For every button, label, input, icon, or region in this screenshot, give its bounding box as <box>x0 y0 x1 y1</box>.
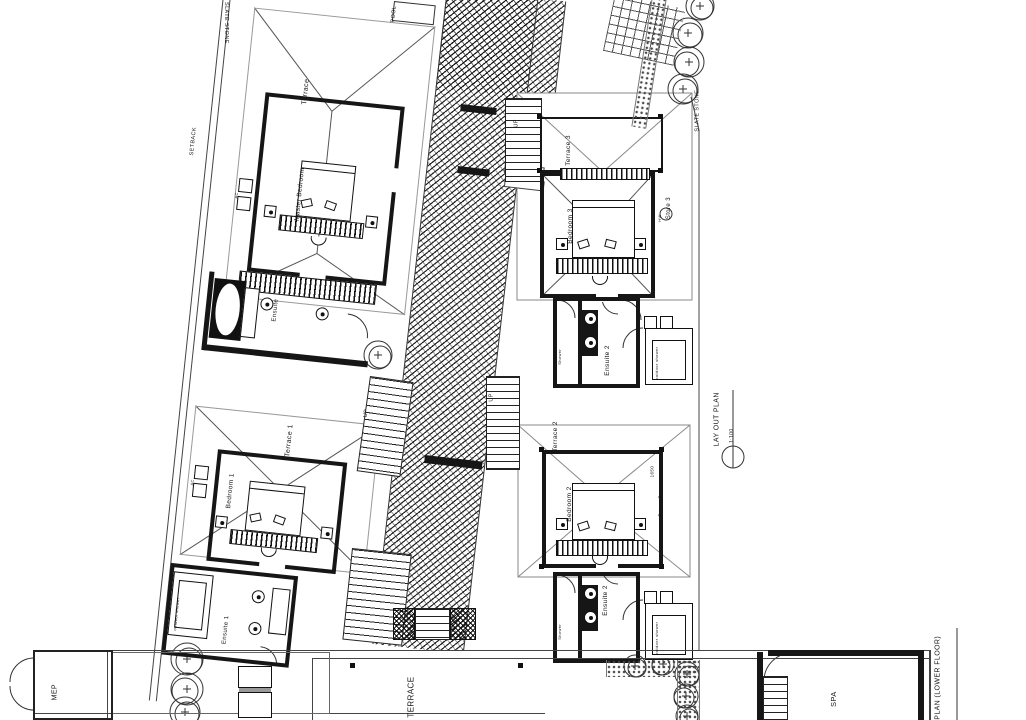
bedroom1-bed <box>245 481 306 537</box>
stair-pier <box>393 608 415 640</box>
mep-inner-wall <box>107 652 108 718</box>
stair-pier <box>450 608 476 640</box>
spa-top-wall <box>768 650 922 656</box>
bedroom3-nightstand <box>556 238 568 250</box>
terrace-column <box>518 663 523 668</box>
bedroom2-bed <box>572 483 635 540</box>
hw-label: HW <box>658 214 663 221</box>
bedroom2-nightstand <box>634 518 646 530</box>
bedroom3-bed <box>572 200 635 258</box>
ensuite2-lower-label: Ensuite 2 <box>602 585 610 616</box>
column-marker <box>659 447 664 452</box>
layout-plan-scale: 1:100 <box>729 428 735 443</box>
up-label: UP <box>488 393 495 401</box>
column-marker <box>539 564 544 569</box>
shower-upper-label: Shower <box>558 349 563 365</box>
ac-unit <box>194 465 209 480</box>
basin <box>584 336 597 349</box>
ac-label: AC <box>190 479 195 486</box>
master-nightstand <box>264 205 277 218</box>
pebble-strip <box>677 660 700 720</box>
terrace2-label: Terrace 2 <box>552 421 560 452</box>
basin <box>584 312 597 325</box>
outdoor-shower-upper-label: outdoor shower <box>655 347 660 380</box>
column-marker <box>658 114 663 119</box>
master-nightstand <box>365 215 378 228</box>
terrace-top-edge <box>312 658 930 659</box>
column-marker <box>537 114 542 119</box>
mep-walls <box>33 650 113 720</box>
terrace-column <box>350 663 355 668</box>
spa-label: SPA <box>829 691 838 707</box>
planter-shelf <box>239 688 271 692</box>
column-marker <box>659 564 664 569</box>
stairs-bottom-center <box>415 608 450 640</box>
bedroom2-bed-bench <box>556 540 648 556</box>
column-marker <box>539 447 544 452</box>
bedroom1-nightstand <box>320 526 333 539</box>
planter-box <box>238 692 272 718</box>
bedroom3-bed-bench <box>556 258 648 274</box>
bedroom3-nightstand <box>634 238 646 250</box>
layout-plan-title: LAY OUT PLAN <box>714 392 722 446</box>
ac-label: AC <box>234 192 239 199</box>
bedroom1-nightstand <box>215 515 228 528</box>
terrace-band-label: TERRACE <box>406 677 416 718</box>
up-label: UP <box>513 119 520 127</box>
bedroom2-label: Bedroom 2 <box>566 486 574 521</box>
basin <box>584 611 597 624</box>
spa-plan-title: SPA PLAN (LOWER FLOOR) <box>935 636 943 720</box>
store3-label: Store 3 <box>666 197 673 219</box>
lower-court <box>112 652 330 714</box>
slate-stone-right-label: SLATE STONE <box>694 90 701 132</box>
mep-label: MEP <box>52 684 60 700</box>
stairs-spa <box>763 676 788 720</box>
column-marker <box>658 168 663 173</box>
outdoor-shower-lower-label: outdoor shower <box>655 622 660 655</box>
bedroom2-door-gap <box>596 564 618 572</box>
spa-right-wall <box>918 650 924 720</box>
store2-label: Store 2 <box>659 495 666 517</box>
dim-1650-label: 1650 <box>650 466 655 478</box>
terrace3-label: Terrace 3 <box>565 135 573 166</box>
stairs-central: UP <box>486 376 520 470</box>
shower-lower-label: Shower <box>558 624 563 640</box>
bedroom3-window-band <box>560 168 650 180</box>
terrace-right-edge <box>929 650 931 720</box>
planter-box <box>238 666 272 688</box>
up-label: UP <box>363 409 371 418</box>
ensuite2-upper-label: Ensuite 2 <box>604 345 612 376</box>
ac-unit <box>238 178 253 193</box>
basin <box>584 587 597 600</box>
floor-plan-canvas: POOL <box>0 0 1026 720</box>
bedroom3-label: Bedroom 3 <box>567 208 575 243</box>
slate-stone-left-label: SLATE STONE <box>222 2 229 44</box>
